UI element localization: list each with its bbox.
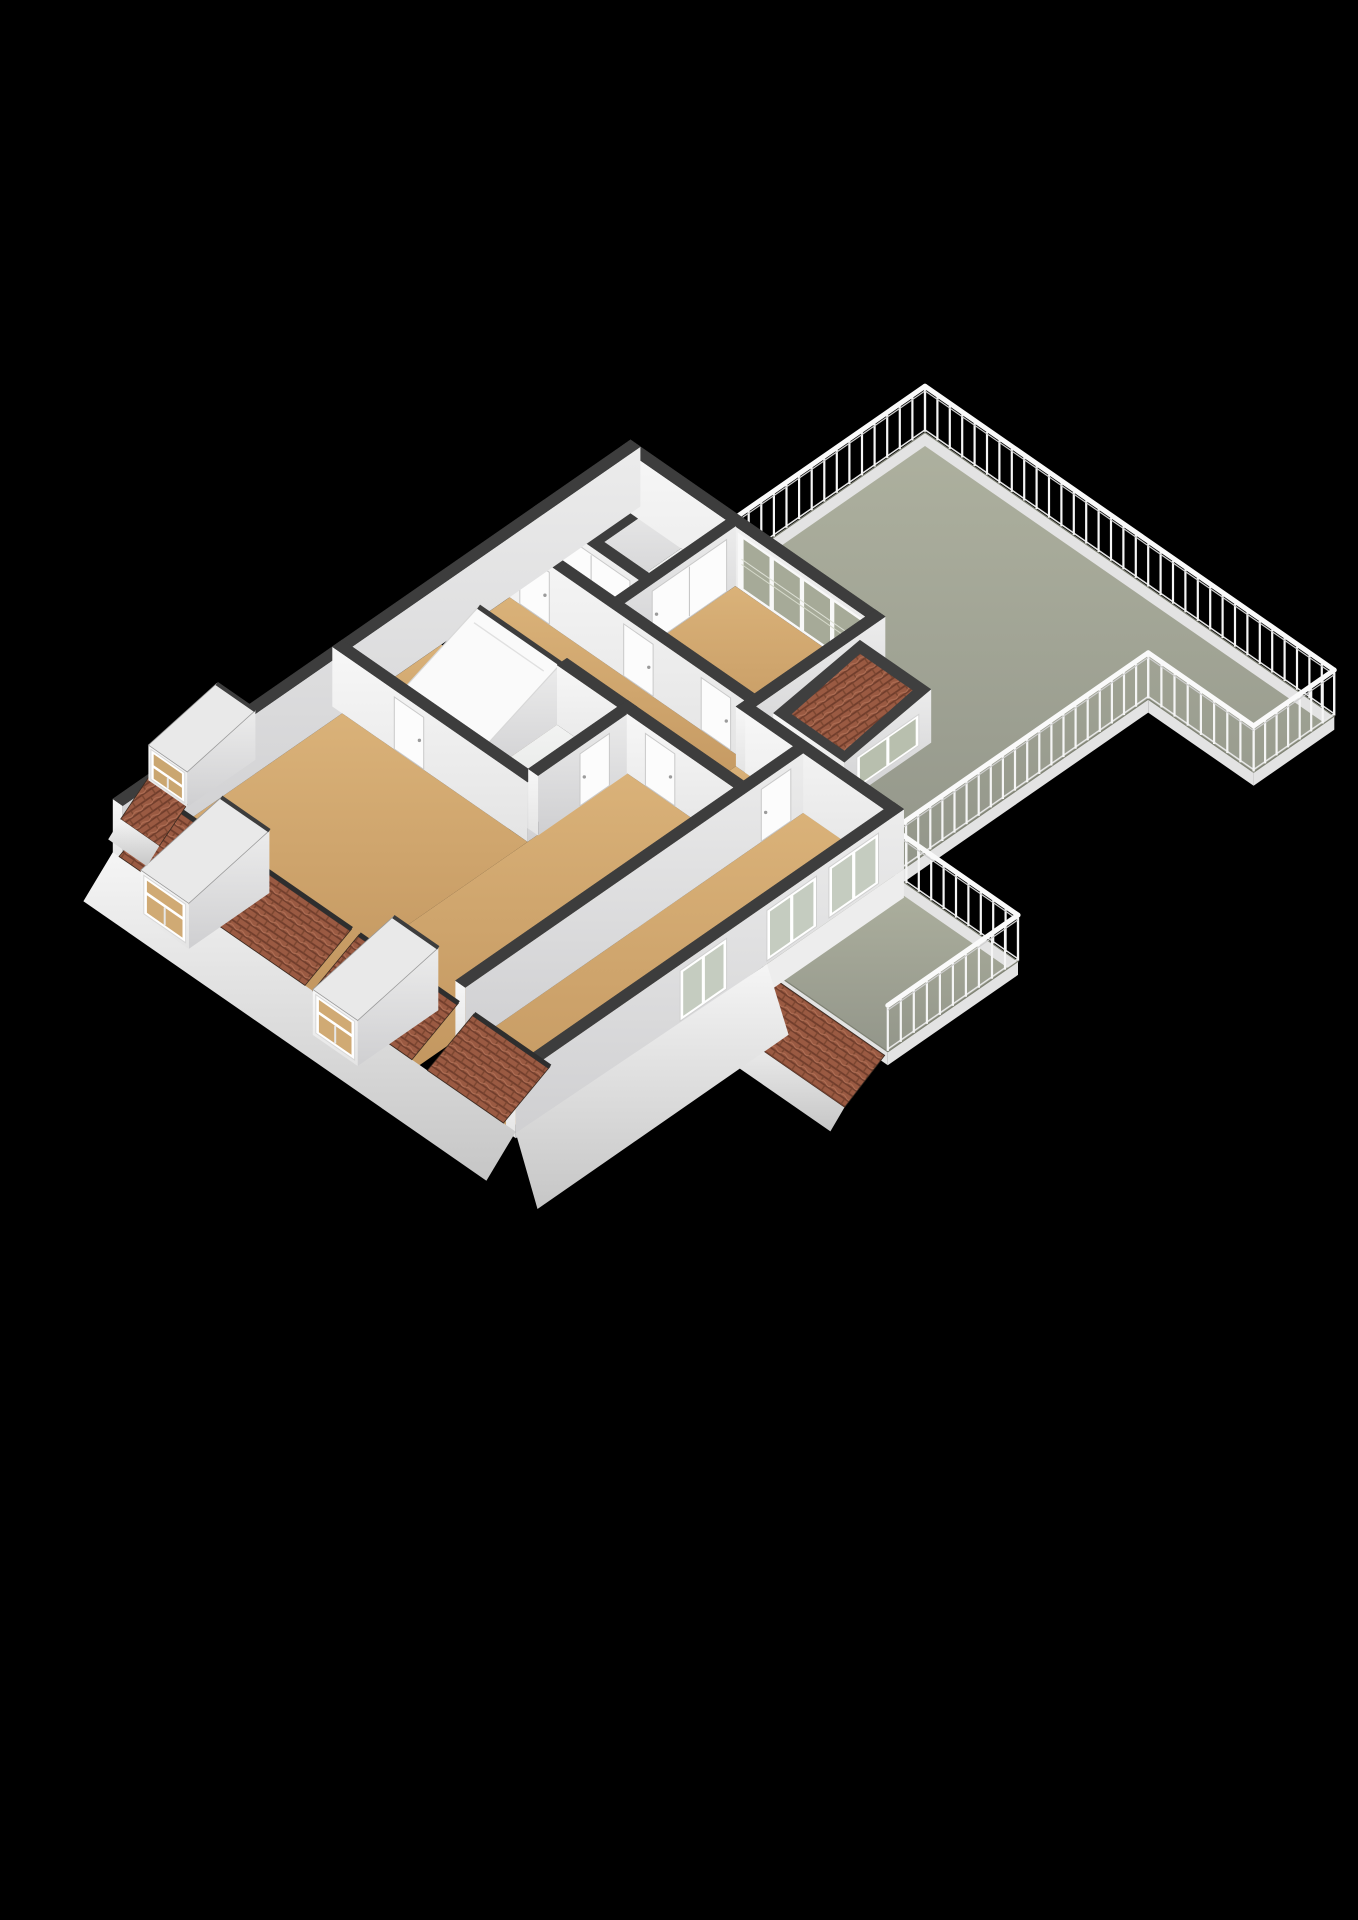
floorplan-3d-render	[0, 0, 1358, 1920]
wall-face	[528, 769, 538, 836]
floorplan-viewport	[0, 0, 1358, 1920]
wall-face	[736, 707, 746, 774]
